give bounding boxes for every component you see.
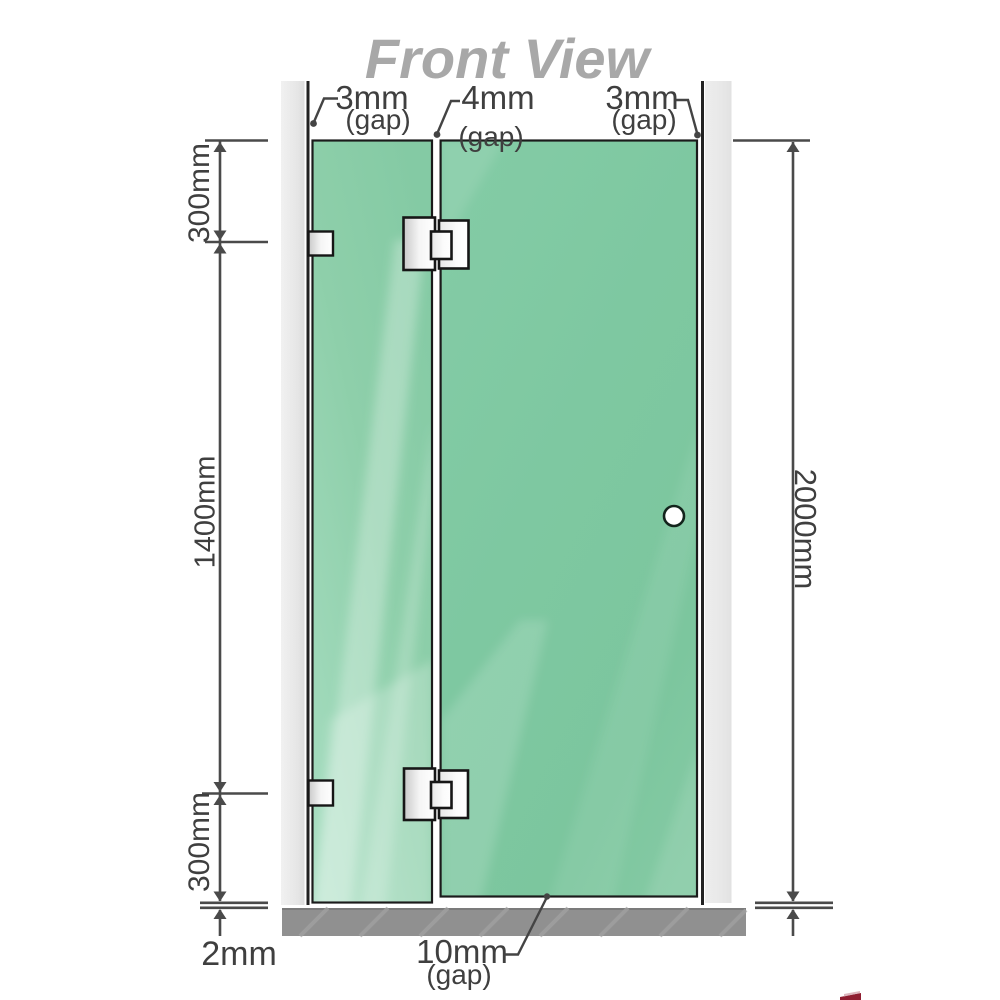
svg-text:2mm: 2mm <box>201 935 277 973</box>
svg-text:(gap): (gap) <box>611 104 676 135</box>
svg-text:300mm: 300mm <box>183 792 216 892</box>
svg-text:4mm: 4mm <box>461 79 534 116</box>
svg-text:2000mm: 2000mm <box>788 469 823 590</box>
svg-text:1400mm: 1400mm <box>190 456 222 569</box>
svg-text:(gap): (gap) <box>345 104 410 135</box>
svg-text:(gap): (gap) <box>458 121 523 152</box>
svg-text:(gap): (gap) <box>426 959 491 990</box>
svg-text:300mm: 300mm <box>183 143 216 243</box>
